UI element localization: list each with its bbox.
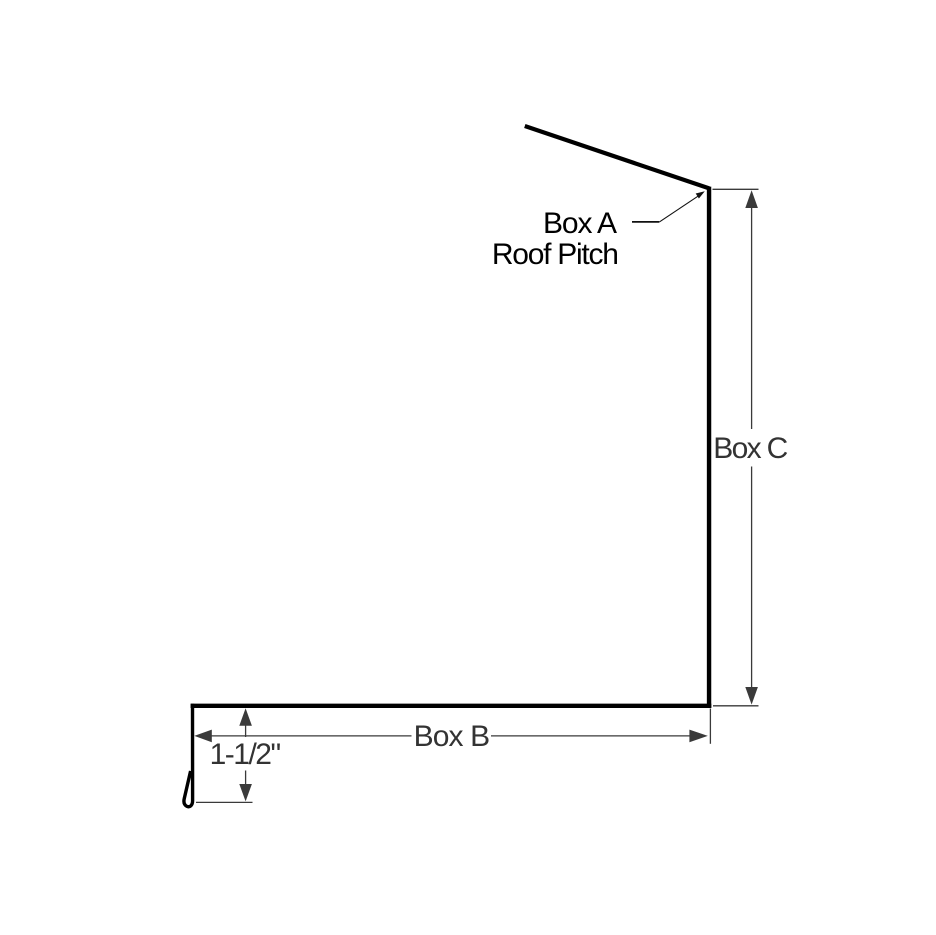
svg-text:Roof Pitch: Roof Pitch [492, 238, 619, 271]
svg-text:Box A: Box A [543, 207, 617, 240]
svg-text:Box C: Box C [713, 432, 788, 465]
svg-text:1-1/2": 1-1/2" [210, 738, 282, 771]
svg-text:Box B: Box B [414, 720, 491, 753]
